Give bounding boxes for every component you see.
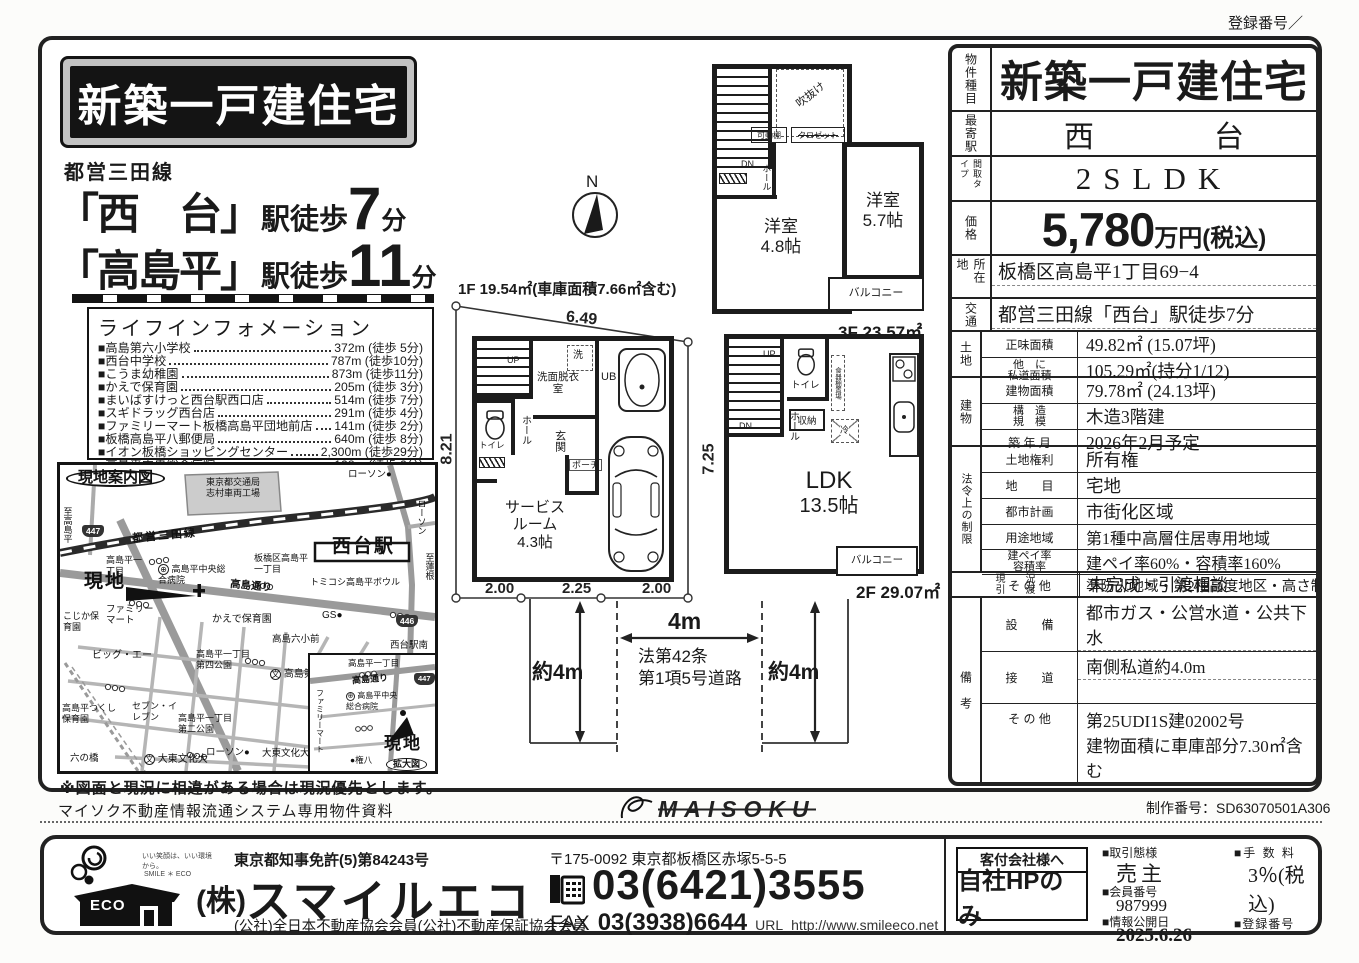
map-disclaimer: ※図面と現況に相違がある場合は現況優先とします。: [60, 777, 442, 798]
url-label: URL: [755, 917, 783, 933]
table-row: 建物面積 79.78㎡ (24.13坪): [982, 378, 1316, 404]
stripe-divider: [72, 294, 434, 303]
dot-leader: [267, 402, 331, 404]
membership-text: (公社)全日本不動産協会会員(公社)不動産保証協会会員: [234, 915, 587, 936]
location-blank: [992, 286, 1316, 297]
map-label-lawson-top: ローソン●: [348, 470, 392, 481]
table-row: そ の 他 第25UDI1S建02002号 建物面積に車庫部分7.30㎡含む: [982, 704, 1316, 782]
hospital-symbol: ⊕: [158, 564, 169, 575]
table-row: 正味面積 49.82㎡ (15.07坪): [982, 332, 1316, 358]
map-label-seven-eleven: セブン・イレブン: [132, 701, 178, 722]
phone-icon: [549, 871, 585, 905]
life-information-box: ライフインフォメーション ■高島第六小学校372m (徒歩 5分) ■西台中学校…: [87, 307, 434, 460]
list-item: ■ファミリーマート板橋高島平団地前店141m (徒歩 2分): [98, 420, 423, 432]
table-group-remarks: 備 考 設 備 都市ガス・公営水道・公共下水 接 道 南側私道約4.0m: [952, 598, 1316, 782]
list-item: ■かえで保育園205m (徒歩 3分): [98, 381, 423, 393]
map-label-familymart: ファミリーマート: [106, 605, 158, 626]
hospital-symbol: ⊕: [346, 692, 355, 701]
university-symbol: 文: [144, 754, 155, 765]
stairs-1f: [477, 341, 533, 399]
map-label-nishidai-station: 西台駅: [332, 542, 395, 553]
registration-top-label: 登録番号／: [1228, 12, 1303, 33]
wall: [477, 479, 497, 483]
walk-label: 駅徒歩: [261, 253, 348, 295]
room-label-shelf: 可動棚: [751, 127, 787, 143]
flyer-sheet: 登録番号／ 新築一戸建住宅 都営三田線 「西 台」 駅徒歩 7 分 「高島平」 …: [0, 0, 1359, 963]
walk-minutes: 11: [348, 241, 411, 291]
dim-1f-left: 8.21: [439, 433, 457, 464]
floorplan-3f-wing: 洋室5.7帖: [842, 142, 924, 280]
wall: [477, 399, 513, 403]
balcony-2f: バルコニー: [836, 546, 918, 576]
publish-date-value: 2025.6.26: [1116, 912, 1192, 947]
road-right-label: 約4m: [768, 656, 819, 686]
station-access-2: 「高島平」 駅徒歩 11 分: [56, 237, 436, 299]
company-url: http://www.smileeco.net: [791, 917, 938, 933]
inset-label-hospital: ⊕ 高島平中央総合病院: [346, 691, 402, 712]
map-label-itabashi-chome: 板橋区高島平一丁目: [254, 553, 316, 574]
dot-leader: [194, 350, 332, 352]
walk-minutes: 7: [348, 184, 381, 234]
dot-leader: [182, 376, 329, 378]
logo-smile-text: SMILE ＊ ECO: [144, 869, 191, 879]
room-label-bedroom-57: 洋室5.7帖: [851, 191, 915, 230]
table-group-legal: 法令上の制限 土地権利 所有権 地 目 宅地 都市計画 市街化区域 用途地域 第…: [952, 447, 1316, 573]
room-label-toilet: トイレ: [479, 441, 505, 451]
map-label-rokusho-mae: 高島六小前: [272, 635, 320, 646]
room-label-toilet: トイレ: [791, 381, 820, 392]
dot-leader: [316, 428, 332, 430]
map-label-big-a: ビッグ・エー: [92, 651, 152, 662]
wall: [533, 415, 599, 419]
room-label-bedroom-48: 洋室4.8帖: [725, 217, 837, 256]
stairs-3f: [717, 69, 772, 169]
company-logo-text: ECO: [90, 897, 126, 914]
wall: [565, 455, 569, 495]
toilet-icon: [795, 347, 817, 377]
room-label-balcony: バルコニー: [838, 287, 914, 300]
walk-label: 駅徒歩: [261, 196, 348, 238]
title-banner-frame: 新築一戸建住宅: [60, 56, 417, 148]
table-row-property-type: 物件種目 新築一戸建住宅: [952, 48, 1316, 112]
compass-n-label: N: [586, 172, 598, 192]
stove-icon: [892, 356, 916, 382]
map-label-tsukushi: 高島平つくし保育園: [62, 703, 118, 724]
maisoku-swoosh-icon: [618, 792, 654, 822]
map-inset: 高島平一丁目 高島通り 447 ⊕ 高島平中央総合病院 ファミリーマート 現地 …: [308, 653, 438, 774]
wall: [787, 397, 829, 401]
map-label-kaede: かえで保育園: [212, 615, 272, 626]
route-447-shield: 447: [82, 525, 104, 537]
map-label-hospital: ⊕ 高島平中央総合病院: [158, 564, 232, 586]
station-value: 西 台: [992, 112, 1316, 155]
table-row-access: 交通 都営三田線「西台」駅徒歩7分: [952, 299, 1316, 332]
title-banner: 新築一戸建住宅: [70, 66, 407, 138]
row-label: 物件種目: [952, 48, 992, 110]
fax-label: FAX: [550, 912, 590, 936]
fee-value: 3％(税込): [1248, 859, 1318, 917]
status-value: 未完成・引渡相談: [1080, 573, 1316, 596]
group-label: 建物: [952, 378, 982, 445]
table-row: 接 道 南側私道約4.0m: [982, 652, 1316, 704]
list-item: ■まいばすけっと西台駅西口店514m (徒歩 7分): [98, 394, 423, 406]
table-row-status: 現 況引 渡 未完成・引渡相談: [952, 573, 1316, 598]
compass-icon: [570, 190, 620, 240]
row-label: 所在地: [952, 256, 992, 297]
map-label-to-takashimadaira: 至高島平: [62, 507, 73, 543]
dot-leader: [218, 441, 331, 443]
road-width-label: 4m: [668, 608, 701, 635]
row-label: 最寄駅: [952, 112, 992, 155]
room-label-closet: クロゼット: [791, 127, 845, 143]
map-label-genchi: 現地: [84, 577, 126, 588]
map-label-gs: GS●: [322, 611, 343, 622]
route-446-shield: 446: [396, 615, 418, 627]
map-label-kojika: こじか保育園: [63, 611, 101, 632]
table-group-building: 建物 建物面積 79.78㎡ (24.13坪) 構 造規 模 木造3階建 築 年…: [952, 378, 1316, 447]
school-symbol: 文: [270, 669, 281, 680]
sink-icon: [893, 401, 915, 433]
layout-value: 2SLDK: [992, 157, 1316, 200]
maisoku-system-text: マイソク不動産情報流通システム専用物件資料: [58, 800, 394, 821]
room-label-hall: ホール: [519, 407, 531, 453]
map-label-rokunohashi: 六の橋: [70, 754, 99, 765]
station-name: 「西 台」: [56, 180, 261, 242]
room-label-dn: DN: [741, 159, 754, 169]
map-label-lawson-right: ローソン: [416, 499, 427, 535]
maisoku-logo: MAISOKU: [658, 796, 816, 823]
registration-number-label: ■登録番号: [1234, 915, 1294, 932]
row-label: 現 況引 渡: [952, 573, 1080, 596]
map-title: 現地案内図: [66, 470, 165, 487]
price-value: 5,780 万円(税込): [992, 202, 1316, 254]
list-item: ■板橋高島平八郵便局640m (徒歩 8分): [98, 433, 423, 445]
room-label-service-room: サービスルーム4.3帖: [483, 499, 587, 551]
inset-label-familymart: ファミリーマート: [314, 689, 325, 753]
access-value: 都営三田線「西台」駅徒歩7分: [992, 299, 1316, 329]
dim-1f-top: 6.49: [565, 308, 598, 329]
car-icon: [605, 433, 667, 575]
room-label-ub: UB: [601, 371, 616, 384]
balcony-3f: バルコニー: [828, 277, 924, 311]
location-value: 板橋区高島平1丁目69−4: [992, 256, 1316, 286]
inset-route-447-shield: 447: [414, 673, 435, 685]
life-information-title: ライフインフォメーション: [98, 312, 423, 341]
room-label-up: UP: [507, 355, 520, 365]
table-row: 用途地域 第1種中高層住居専用地域: [982, 525, 1320, 550]
group-label: 土地: [952, 332, 982, 376]
dim-1f-right: 7.25: [701, 443, 719, 474]
map-label-daito-univ: 文 大東文化大: [144, 754, 208, 766]
row-label: 価格: [952, 202, 992, 254]
floorplan-1f-body: UP 洗 洗面脱衣室 UB トイレ ホール 玄関 ポーチ サービスルーム4.3帖: [472, 336, 674, 582]
dot-leader: [218, 415, 331, 417]
access-blank: [992, 329, 1316, 330]
dot-leader: [169, 363, 328, 365]
wall: [595, 419, 599, 495]
table-row: 構 造規 模 木造3階建: [982, 404, 1316, 430]
phone-number: 03(6421)3555: [592, 861, 866, 909]
stairs-2f: [729, 339, 784, 437]
wall: [565, 491, 599, 495]
list-item: ■こうま幼稚園873m (徒歩11分): [98, 368, 423, 380]
table-row-price: 価格 5,780 万円(税込): [952, 202, 1316, 256]
minutes-unit: 分: [411, 258, 436, 294]
room-label-washroom: 洗面脱衣室: [535, 371, 581, 395]
map-label-park2: 高島平一丁目第二公園: [178, 713, 240, 734]
map-label-factory: 東京都交通局志村車両工場: [190, 477, 276, 498]
wall: [772, 143, 776, 199]
table-row: 都市計画 市街化区域: [982, 499, 1320, 525]
map-label-lawson-bottom: ローソン●: [206, 748, 250, 759]
table-row-layout: 間取タイプ 2SLDK: [952, 157, 1316, 202]
room-label-entrance: 玄関: [553, 423, 566, 459]
road-left-label: 約4m: [532, 656, 583, 686]
footer-divider: [944, 839, 946, 931]
agent-box-value: 自社HPのみ: [958, 873, 1086, 919]
room-label-storage: 収納: [789, 409, 825, 431]
dot-leader: [291, 454, 318, 456]
room-label-balcony: バルコニー: [844, 554, 910, 566]
location-map: 現地案内図 東京都交通局志村車両工場 ローソン● 至高島平 447 都営三田線 …: [57, 462, 438, 774]
room-label-laundry: 洗: [573, 350, 583, 362]
road-law-line2: 第1項5号道路: [638, 664, 742, 689]
window-hatch: [479, 457, 505, 468]
table-row: 設 備 都市ガス・公営水道・公共下水: [982, 598, 1316, 652]
map-label-bowl: トミコシ高島平ボウル: [310, 577, 400, 588]
list-item: ■スギドラッグ西台店291m (徒歩 4分): [98, 407, 423, 419]
list-item: ■イオン板橋ショッピングセンター2,300m (徒歩29分): [98, 446, 423, 458]
table-row: 土地権利 所有権: [982, 447, 1320, 473]
agent-notice-box: 客付会社様へ 自社HPのみ: [956, 847, 1088, 921]
room-label-hall: ホール: [761, 157, 771, 197]
table-row-station: 最寄駅 西 台: [952, 112, 1316, 157]
dot-leader: [181, 389, 331, 391]
property-table: 物件種目 新築一戸建住宅 最寄駅 西 台 間取タイプ 2SLDK 価格 5,78…: [948, 44, 1320, 786]
table-group-land: 土地 正味面積 49.82㎡ (15.07坪) 他 に私道面積 105.29㎡(…: [952, 332, 1316, 378]
table-row: 地 目 宅地: [982, 473, 1320, 499]
group-label: 法令上の制限: [952, 447, 982, 571]
station-name: 「高島平」: [56, 237, 261, 299]
production-number: 制作番号：SD63070501A306: [1146, 798, 1330, 818]
map-label-park4: 高島平一丁目第四公園: [196, 649, 258, 670]
inset-label-genchi: 現地: [384, 739, 422, 750]
window-hatch: [719, 173, 747, 184]
dotted-divider: [40, 821, 1322, 823]
inset-label-gonpachi: ●権八: [350, 755, 372, 766]
wall: [595, 341, 599, 419]
fax-number: 03(3938)6644: [598, 909, 747, 937]
wall: [825, 339, 829, 401]
table-row-location: 所在地 板橋区高島平1丁目69−4: [952, 256, 1316, 299]
map-label-station-south: 西台駅南: [390, 641, 428, 652]
bathtub-icon: [617, 347, 667, 413]
group-label: 備 考: [952, 598, 982, 782]
list-item: ■高島第六小学校372m (徒歩 5分): [98, 342, 423, 354]
inset-label-chome: 高島平一丁目: [348, 658, 399, 669]
room-label-up: UP: [763, 349, 776, 359]
room-label-cupboard: 食器棚置場: [833, 357, 840, 409]
row-label: 交通: [952, 299, 992, 330]
toilet-icon: [483, 409, 507, 441]
room-label-dn: DN: [739, 421, 752, 431]
room-label-fridge: 冷: [840, 425, 849, 435]
inset-label-kakudai: 拡大図: [386, 758, 427, 771]
list-item: ■西台中学校787m (徒歩10分): [98, 355, 423, 367]
fax-url-row: FAX 03(3938)6644 URL http://www.smileeco…: [550, 909, 938, 937]
floorplan-2f-body: UP DN ホール トイレ 収納 冷 食器棚置場 LDK 13.5帖: [724, 334, 924, 574]
row-label: 間取タイプ: [952, 157, 992, 200]
map-label-to-hasune: 至蓮根: [424, 553, 435, 580]
company-footer: ECO いい笑顔は、いい環境から。 SMILE ＊ ECO 東京都知事免許(5)…: [40, 835, 1322, 935]
wall: [511, 399, 515, 455]
room-label-ldk: LDK 13.5帖: [769, 467, 889, 518]
property-type-value: 新築一戸建住宅: [992, 48, 1316, 110]
